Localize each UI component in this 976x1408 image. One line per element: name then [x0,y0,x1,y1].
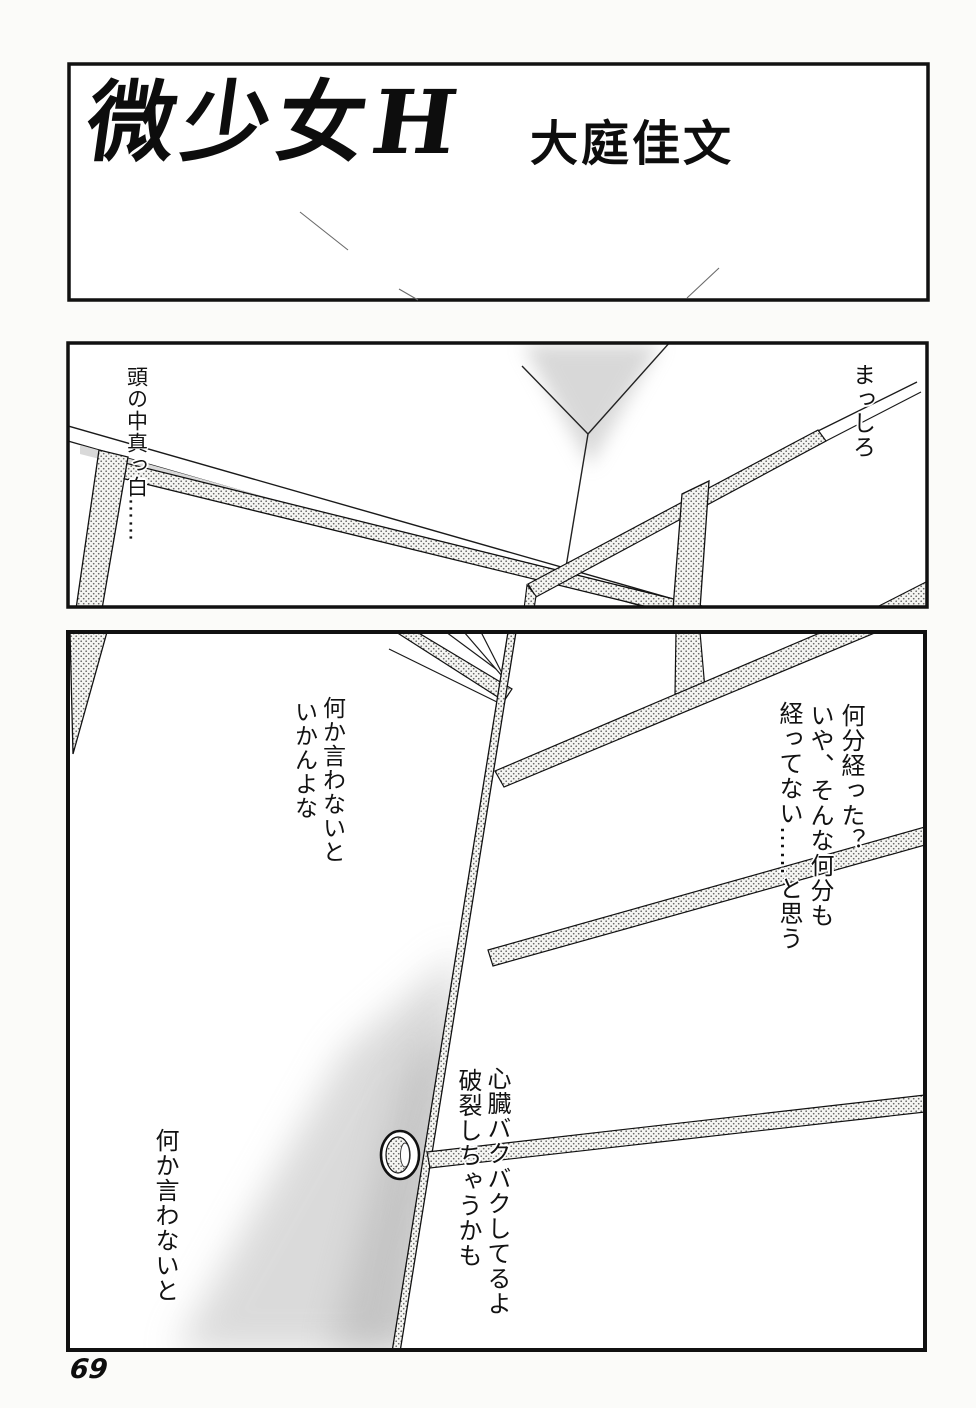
monologue-right-line3: 経ってない……と思う [777,701,801,951]
doorknob [381,1131,419,1179]
thought-left: 頭の中真っ白…… [126,366,147,542]
monologue-center-line2: 破裂しちゃうかも [456,1068,480,1268]
manga-page: 微少女H 大庭佳文 [0,0,976,1408]
page-number: 69 [68,1354,109,1385]
monologue-upper-left-line1: 何か言わないと [320,696,343,864]
monologue-right-line1: 何分経った？ [839,703,863,853]
monologue-upper-left-line2: いかんよな [292,700,315,820]
thought-right: まっしろ [850,363,873,459]
monologue-center-line1: 心臓バクバクしてるよ [485,1066,509,1316]
author-name: 大庭佳文 [530,104,734,174]
monologue-lower-left: 何か言わないと [153,1128,177,1303]
middle-panel-art [60,335,935,615]
chapter-title: 微少女H [82,76,470,168]
monologue-right-line2: いや、そんな何分も [808,703,832,928]
